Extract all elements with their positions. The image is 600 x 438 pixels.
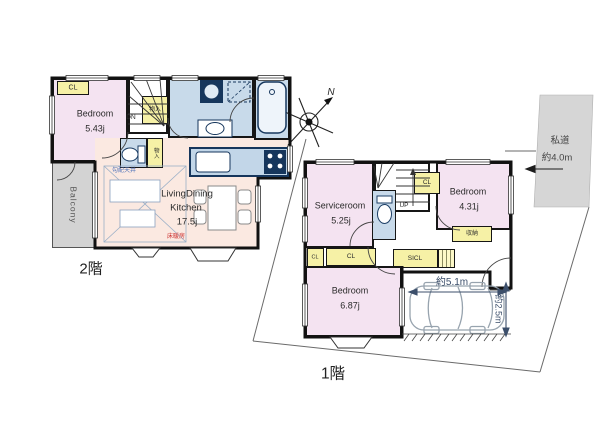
sloped-ceiling-label: 勾配天井 [112,168,136,174]
storage-label-stairs-2f: 物入 [149,107,161,113]
room-label-bedroom-2f: Bedroom [77,110,114,119]
bay-windows-2f [132,248,236,261]
storage-label-toilet-2f: 物入 [152,148,158,159]
room-toilet-1f [372,190,396,240]
room-washroom-2f [168,78,254,138]
compass-icon [285,97,333,147]
room-area-serviceroom: 5.25j [331,217,351,226]
shoe-shelf-1f [438,249,455,268]
private-road [526,95,593,207]
closet-label-b-1f: CL [347,254,355,261]
room-label-ldk-line1: LivingDining [161,189,213,199]
storage-label-1f: 収納 [466,231,478,237]
parking-width-label: 約5.1m [436,278,468,288]
floor-heating-label: 床暖房 [167,234,185,240]
compass-north-label: N [327,88,334,98]
car-icon [410,283,504,334]
floorplan-page: Bedroom 5.43j LivingDining Kitchen 17.5j… [0,0,600,438]
room-label-serviceroom: Serviceroom [315,202,366,211]
room-label-ldk-line2: Kitchen [170,203,202,213]
closet-label-2f: CL [69,85,78,92]
shoe-closet-label: SICL [408,256,422,263]
road-width-label: 約4.0m [542,153,573,163]
room-toilet-2f [120,138,147,168]
closet-label-east-1f: CL [423,180,431,187]
room-label-bedroom-south: Bedroom [332,287,369,296]
room-area-bedroom-east: 4.31j [459,203,479,212]
parking-depth-label: 約2.5m [494,294,503,323]
room-bathroom-2f [254,78,290,140]
room-label-bedroom-east: Bedroom [450,188,487,197]
stairs-label-1f: UP [399,203,408,210]
room-area-ldk: 17.5j [177,217,198,227]
parking-edge-hatch [402,334,511,341]
room-area-bedroom-2f: 5.43j [85,125,105,134]
floor-label-2f: 2階 [79,262,102,277]
balcony-label: Balcony [69,186,78,223]
room-area-bedroom-south: 6.87j [340,302,360,311]
road-name-label: 私道 [550,136,569,146]
floor-label-1f: 1階 [321,366,345,382]
bay-window-1f [330,337,372,348]
closet-label-a-1f: CL [311,255,318,261]
stairs-label-2f: DN [126,115,135,122]
